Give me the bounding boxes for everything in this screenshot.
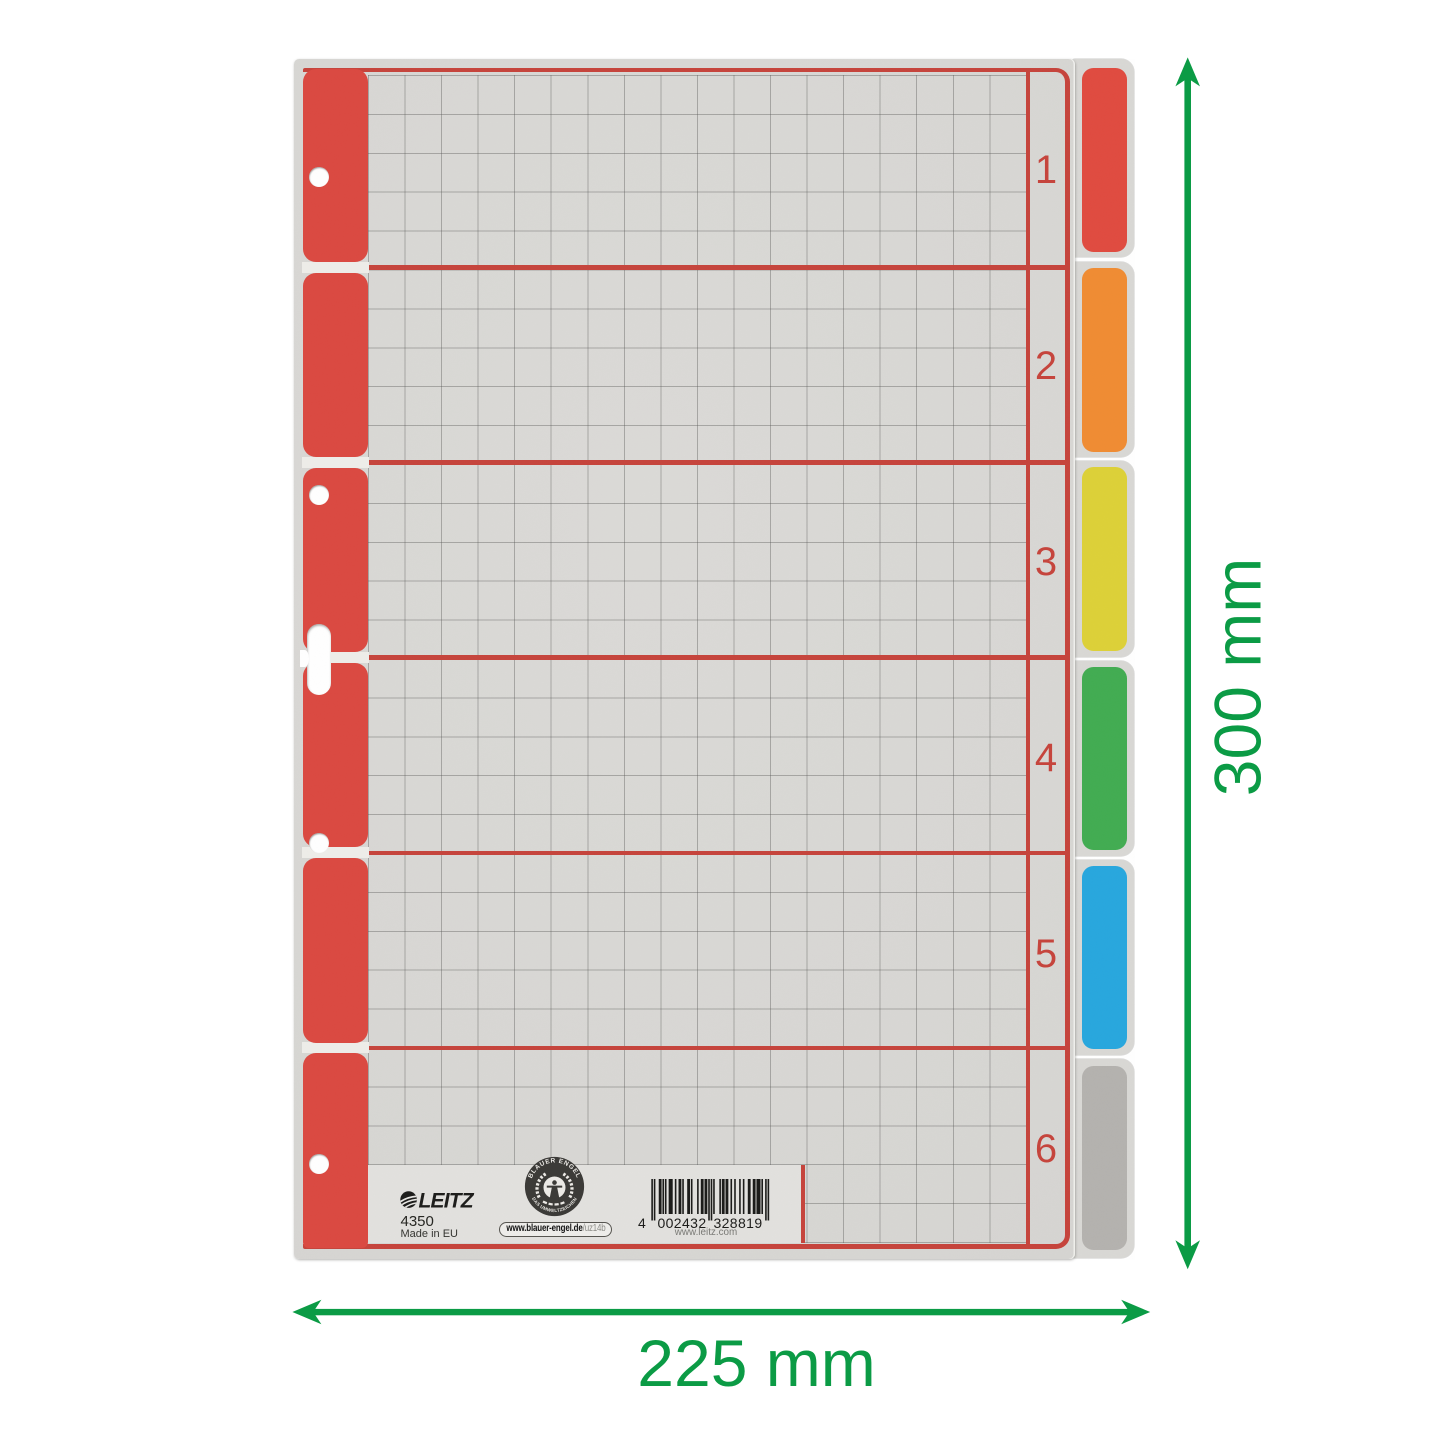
svg-text:300 mm: 300 mm: [1201, 558, 1275, 796]
svg-text:225 mm: 225 mm: [637, 1326, 875, 1400]
